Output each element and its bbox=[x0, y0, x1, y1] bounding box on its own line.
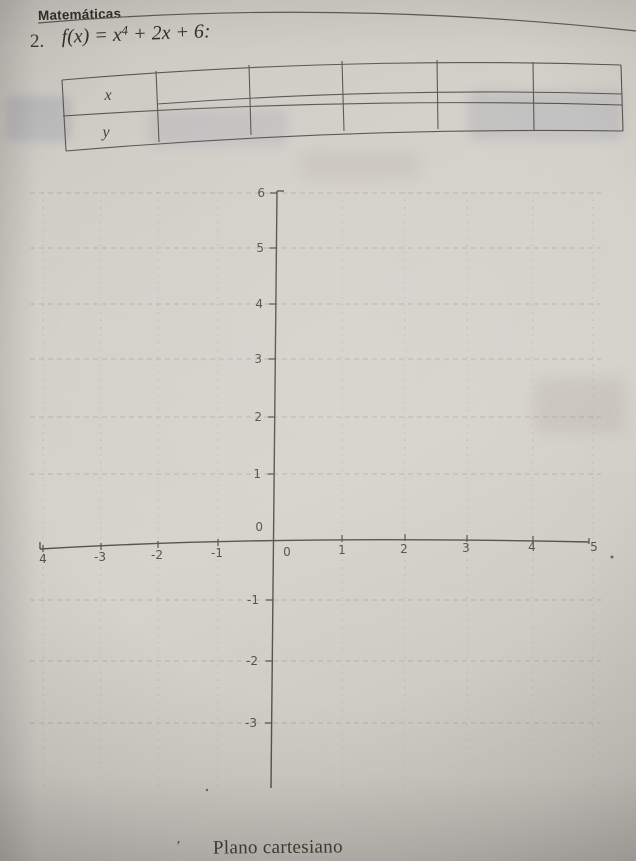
table-row-divider bbox=[63, 103, 622, 116]
table-border-top bbox=[62, 63, 621, 80]
table-column-lines bbox=[156, 60, 534, 142]
y-axis-ticks bbox=[265, 193, 277, 723]
x-tick-label: 3 bbox=[462, 541, 470, 555]
x-tick-label: 4 bbox=[528, 540, 536, 554]
table-row-label-y: y bbox=[100, 124, 110, 141]
y-tick-label: 4 bbox=[255, 297, 263, 311]
value-table bbox=[62, 60, 623, 151]
x-tick-label: 5 bbox=[590, 540, 598, 554]
x-tick-label: -2 bbox=[151, 548, 163, 562]
y-tick-label: 1 bbox=[253, 467, 261, 481]
x-tick-label-origin: 0 bbox=[283, 545, 291, 559]
y-tick-label: -2 bbox=[246, 654, 258, 668]
table-border-right bbox=[621, 65, 623, 131]
y-tick-label: 6 bbox=[257, 186, 265, 200]
x-tick-label: -3 bbox=[94, 550, 106, 564]
y-tick-label: 3 bbox=[254, 352, 262, 366]
worksheet-page: { "header": { "title": "Matemáticas" }, … bbox=[0, 0, 636, 861]
x-tick-label: 4 bbox=[39, 552, 47, 566]
x-tick-label: 1 bbox=[338, 543, 346, 557]
y-tick-label: 2 bbox=[254, 410, 262, 424]
x-tick-label: -1 bbox=[211, 546, 223, 560]
y-axis bbox=[271, 191, 277, 788]
x-axis-ticks bbox=[43, 534, 589, 552]
y-tick-label: 5 bbox=[256, 241, 264, 255]
gridlines-vertical bbox=[43, 192, 593, 789]
worksheet-linework: x y 6 5 4 3 2 1 0 -1 -2 -3 4 -3 -2 -1 0 … bbox=[0, 0, 636, 861]
table-border-bottom bbox=[66, 130, 623, 151]
stray-dot bbox=[611, 556, 614, 559]
x-tick-label: 2 bbox=[400, 542, 408, 556]
cartesian-plane: 6 5 4 3 2 1 0 -1 -2 -3 4 -3 -2 -1 0 1 2 … bbox=[30, 186, 614, 854]
stray-dot bbox=[206, 789, 208, 791]
y-tick-label-origin: 0 bbox=[255, 520, 263, 534]
header-rule bbox=[38, 12, 636, 31]
gridlines-horizontal bbox=[30, 193, 601, 723]
y-tick-label: -1 bbox=[247, 593, 259, 607]
y-tick-label: -3 bbox=[245, 716, 257, 730]
x-axis bbox=[40, 540, 589, 549]
stray-apostrophe: ’ bbox=[176, 839, 181, 854]
table-row-divider-upper bbox=[157, 92, 622, 104]
table-row-label-x: x bbox=[103, 87, 111, 104]
